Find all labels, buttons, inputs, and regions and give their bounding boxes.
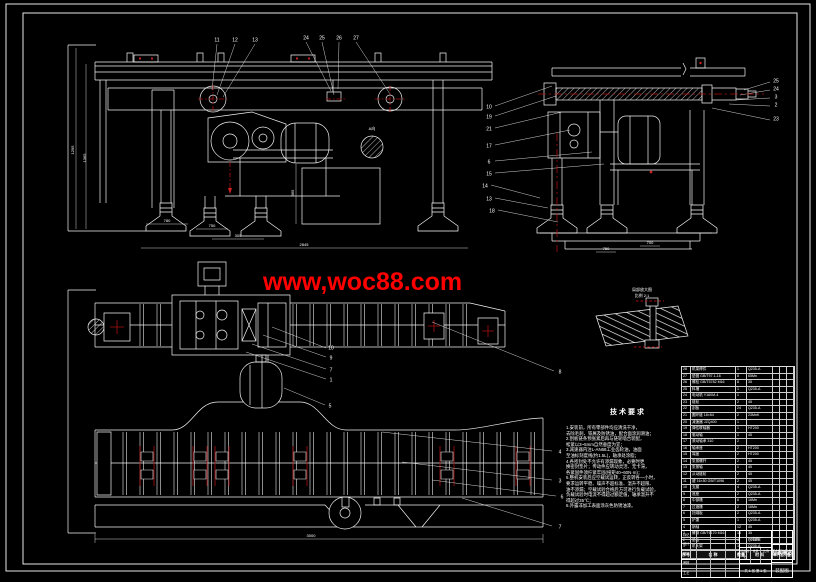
bom-cell: 45 (747, 433, 773, 439)
bom-cell: 10 (682, 485, 691, 491)
titleblock-sign-row: 设计 (682, 540, 739, 549)
bom-cell: 从动链轮 (691, 472, 736, 478)
bom-cell (780, 505, 787, 511)
part-callout: 8 (559, 371, 562, 376)
bom-cell (787, 420, 794, 426)
notes-title: 技术要求 (566, 407, 690, 417)
part-callout: 23 (773, 118, 779, 123)
bom-cell: 2 (736, 459, 747, 465)
sign-label-cell: 设计 (682, 540, 697, 548)
bom-cell (787, 374, 794, 380)
part-callout: 27 (353, 37, 359, 42)
bom-cell: 7 (682, 505, 691, 511)
sign-empty-cell (697, 559, 712, 567)
part-callout: 13 (486, 198, 492, 203)
weight-label: 重量 (751, 548, 762, 563)
bom-cell: 机架焊件 (691, 367, 736, 373)
bom-cell: 滚动轴承 310 (691, 439, 736, 445)
part-callout: 19 (486, 116, 492, 121)
part-callout: 6 (561, 496, 564, 501)
part-callout: 15 (486, 173, 492, 178)
sign-empty-cell (726, 559, 740, 567)
bom-cell: Q235-A (747, 367, 773, 373)
organization-name: ××机械厂 (740, 531, 771, 548)
bom-cell: 23MnK (747, 413, 773, 419)
sign-label-cell: 工艺 (682, 569, 697, 577)
part-callout: 10 (328, 347, 334, 352)
bom-cell: 1 (736, 433, 747, 439)
bom-cell (780, 498, 787, 504)
bom-cell: 5 (682, 518, 691, 524)
bom-cell (787, 387, 794, 393)
part-callout: 24 (773, 88, 779, 93)
bom-cell (747, 393, 773, 399)
dimension-label: 1295 (71, 146, 75, 155)
detail-label-line1: 局部放大图 (632, 288, 652, 293)
bom-cell: 2 (736, 446, 747, 452)
bom-cell (787, 472, 794, 478)
bom-cell (773, 446, 780, 452)
bom-cell (787, 511, 794, 517)
bom-cell: 16Mn (747, 498, 773, 504)
bom-cell: 8 (736, 374, 747, 380)
bom-cell: 1 (736, 387, 747, 393)
bom-cell (787, 380, 794, 386)
bom-cell (787, 498, 794, 504)
bom-cell: 电动机 Y160M-4 (691, 393, 736, 399)
bom-cell: HT200 (747, 426, 773, 432)
bom-cell: HT200 (747, 446, 773, 452)
bom-cell (787, 426, 794, 432)
bom-cell: 45 (747, 465, 773, 471)
detail-label-line2: 比例 2:1 (635, 294, 650, 299)
bom-cell: 9 (682, 492, 691, 498)
bom-cell: 4 (736, 485, 747, 491)
bom-cell: 链轮 (691, 400, 736, 406)
bom-cell: 2 (736, 452, 747, 458)
scale-label: 比例 (761, 548, 771, 563)
bom-cell (773, 420, 780, 426)
bom-cell (773, 498, 780, 504)
bom-cell: Q235-A (747, 518, 773, 524)
sign-empty-cell (697, 531, 712, 539)
bom-cell: 16Mn (747, 505, 773, 511)
bom-cell: 65Mn (747, 374, 773, 380)
bom-cell (780, 511, 787, 517)
sign-empty-cell (726, 540, 740, 548)
bom-cell: 弹性联轴器 (691, 426, 736, 432)
bom-cell (780, 492, 787, 498)
note-line: 6.外露非加工表面涂灰色防锈油漆。 (566, 503, 690, 509)
bom-cell (780, 433, 787, 439)
bom-cell (773, 518, 780, 524)
bom-cell: 2 (736, 511, 747, 517)
bom-cell (787, 367, 794, 373)
bom-cell (787, 400, 794, 406)
part-callout: 13 (252, 39, 258, 44)
bom-cell: Q235-A (747, 511, 773, 517)
watermark-text: www,woc88.com (263, 268, 462, 297)
bom-cell: 14 (682, 459, 691, 465)
bom-cell (773, 465, 780, 471)
bom-cell: 张紧轴 (691, 465, 736, 471)
title-block-signature-grid: 标记设计校核审核工艺 (682, 531, 740, 577)
dimension-label: 365 (291, 190, 295, 197)
bom-cell: 45 (747, 459, 773, 465)
bom-cell (773, 380, 780, 386)
bom-cell (780, 472, 787, 478)
bom-cell: 键 16×50 GB/T1096 (691, 479, 736, 485)
bom-cell: 11 (682, 479, 691, 485)
sign-label-cell: 标记 (682, 531, 697, 539)
bom-cell: 24 (736, 406, 747, 412)
bom-cell: Q235-A (747, 406, 773, 412)
bom-cell (780, 446, 787, 452)
bom-cell: 端盖 (691, 452, 736, 458)
bom-cell: 2 (736, 492, 747, 498)
bom-cell: 2 (736, 472, 747, 478)
bom-cell: 16 (682, 446, 691, 452)
bom-cell: 28 (682, 367, 691, 373)
part-callout: 18 (489, 210, 495, 215)
bom-cell: 挡煤板 (691, 511, 736, 517)
part-callout: 9 (330, 357, 333, 362)
bom-cell (780, 400, 787, 406)
bom-cell: 护罩 (691, 518, 736, 524)
bom-cell (773, 413, 780, 419)
bom-cell (787, 413, 794, 419)
dimension-label: 1365 (83, 154, 87, 163)
notes-body: 1.安装前，所有零部件均应清洗干净，去除毛刺、铁屑及防锈油，配合面涂润滑油；2.… (566, 425, 690, 509)
bom-cell: 料槽 (691, 387, 736, 393)
bom-cell (780, 374, 787, 380)
bom-cell (773, 511, 780, 517)
sign-empty-cell (726, 569, 740, 577)
dimension-label: 700 (647, 241, 654, 245)
part-callout: 26 (336, 37, 342, 42)
bom-cell: 减速器 JZQ400 (691, 420, 736, 426)
bom-cell: 底座 (691, 492, 736, 498)
sign-empty-cell (697, 569, 712, 577)
sheet-count: 共 1 张 第 1 张 (740, 564, 771, 577)
bom-cell (773, 433, 780, 439)
bom-cell (780, 406, 787, 412)
bom-cell (780, 518, 787, 524)
bom-cell: 26 (682, 380, 691, 386)
cad-drawing-canvas: 1112132425262710192117615141318252432231… (0, 0, 816, 582)
bom-cell: 35 (747, 380, 773, 386)
bom-cell (780, 380, 787, 386)
part-callout: 25 (773, 80, 779, 85)
bom-cell: 垫圈 GB/T97.1-16 (691, 374, 736, 380)
bom-cell (780, 367, 787, 373)
bom-cell: 过渡槽 (691, 505, 736, 511)
bom-cell (780, 452, 787, 458)
bom-cell: 20 (682, 420, 691, 426)
bom-cell: 2 (736, 439, 747, 445)
dimension-label: 2845 (300, 243, 309, 247)
bom-cell: 刮板 (691, 406, 736, 412)
bom-cell (787, 479, 794, 485)
titleblock-sign-row: 工艺 (682, 569, 739, 577)
bom-cell: Q235-A (747, 485, 773, 491)
bom-cell (773, 374, 780, 380)
technical-notes: 技术要求 1.安装前，所有零部件均应清洗干净，去除毛刺、铁屑及防锈油，配合面涂润… (566, 407, 690, 509)
part-callout: 17 (486, 145, 492, 150)
sign-empty-cell (697, 540, 712, 548)
dimension-label: 3000 (307, 534, 316, 538)
bom-cell (773, 387, 780, 393)
sign-empty-cell (726, 550, 740, 558)
bom-cell: 13 (682, 465, 691, 471)
bom-cell (780, 426, 787, 432)
part-callout: 24 (303, 37, 309, 42)
bom-cell: HT200 (747, 452, 773, 458)
bom-cell: 21 (682, 413, 691, 419)
bom-cell (787, 465, 794, 471)
bom-cell (787, 459, 794, 465)
bom-cell: 1 (736, 465, 747, 471)
drawing-title: 刮板输送机 (772, 545, 792, 563)
sign-empty-cell (711, 550, 726, 558)
stage-weight-scale-row: 阶段标记 重量 比例 (740, 548, 771, 564)
bom-cell: Q235-A (747, 387, 773, 393)
bom-cell: 23 (682, 400, 691, 406)
bom-cell (780, 387, 787, 393)
bom-cell (773, 393, 780, 399)
part-callout: 14 (482, 185, 488, 190)
stage-label: 阶段标记 (740, 548, 751, 563)
bom-cell: 45 (747, 472, 773, 478)
bom-cell (787, 433, 794, 439)
bom-cell (773, 459, 780, 465)
bom-cell: 支腿 (691, 485, 736, 491)
bom-cell: Q235-A (747, 492, 773, 498)
bom-cell (773, 485, 780, 491)
bom-cell (787, 452, 794, 458)
bom-cell (780, 485, 787, 491)
bom-cell: 18 (682, 433, 691, 439)
dimension-label: 750 (209, 224, 216, 228)
bom-cell (780, 459, 787, 465)
bom-cell: 22 (682, 406, 691, 412)
bom-cell (773, 439, 780, 445)
bom-cell (787, 406, 794, 412)
drawing-number-cell (772, 531, 792, 545)
bom-cell (787, 505, 794, 511)
bom-cell: 24 (682, 393, 691, 399)
title-block: 标记设计校核审核工艺 ××机械厂 阶段标记 重量 比例 共 1 张 第 1 张 … (681, 530, 793, 578)
bom-cell: 1 (736, 420, 747, 426)
bom-cell (787, 439, 794, 445)
bom-cell (787, 393, 794, 399)
bom-cell (780, 479, 787, 485)
bom-cell (780, 465, 787, 471)
sign-empty-cell (711, 540, 726, 548)
bom-cell: 2 (736, 413, 747, 419)
part-callout: 11 (214, 39, 219, 44)
bom-cell (773, 400, 780, 406)
bom-cell: 1 (736, 518, 747, 524)
bom-cell: 12 (682, 472, 691, 478)
bom-cell (773, 472, 780, 478)
bom-cell (787, 492, 794, 498)
bom-cell (780, 393, 787, 399)
part-callout: 10 (486, 106, 492, 111)
bom-cell (787, 485, 794, 491)
part-callout: 4 (559, 451, 562, 456)
bom-cell: 45 (747, 400, 773, 406)
sign-empty-cell (711, 569, 726, 577)
bom-cell: 驱动轴 (691, 433, 736, 439)
sign-empty-cell (711, 559, 726, 567)
part-callout: 7 (330, 369, 333, 374)
bom-cell (787, 446, 794, 452)
bom-cell: 6 (736, 498, 747, 504)
part-callout: 6 (488, 161, 491, 166)
bom-cell: 15 (682, 452, 691, 458)
bom-cell (773, 479, 780, 485)
sign-empty-cell (726, 531, 740, 539)
bom-cell (747, 420, 773, 426)
bom-cell: 圆环链 18×64 (691, 413, 736, 419)
part-callout: 21 (486, 128, 492, 133)
bom-cell (773, 492, 780, 498)
bom-cell: 25 (682, 387, 691, 393)
bom-cell: 6 (682, 511, 691, 517)
bom-cell: 45 (747, 479, 773, 485)
dimension-label: 305 (235, 234, 242, 238)
part-callout: 3 (559, 480, 562, 485)
title-block-right: 刮板输送机 装配图 (772, 531, 792, 577)
sign-empty-cell (697, 550, 712, 558)
section-tag: A向 (369, 127, 376, 132)
bom-cell: 2 (736, 479, 747, 485)
bom-cell (773, 505, 780, 511)
part-callout: 3 (775, 96, 778, 101)
part-callout: 1 (330, 379, 333, 384)
bom-cell (773, 406, 780, 412)
bom-cell: 1 (736, 426, 747, 432)
bom-cell: 8 (682, 498, 691, 504)
bom-cell: 2 (736, 400, 747, 406)
bom-cell: 1 (736, 393, 747, 399)
bom-cell: 张紧螺杆 (691, 459, 736, 465)
titleblock-sign-row: 审核 (682, 559, 739, 568)
bom-cell: 轴承座 (691, 446, 736, 452)
part-callout: 2 (775, 104, 778, 109)
bom-cell: 8 (736, 380, 747, 386)
sign-label-cell: 校核 (682, 550, 697, 558)
part-callout: 7 (559, 526, 562, 531)
bom-cell: 2 (736, 505, 747, 511)
bom-cell (747, 439, 773, 445)
part-callout: 25 (319, 37, 325, 42)
sign-empty-cell (711, 531, 726, 539)
sign-label-cell: 审核 (682, 559, 697, 567)
bom-cell: 17 (682, 439, 691, 445)
part-callout: 5 (329, 405, 332, 410)
bom-cell (780, 439, 787, 445)
dimension-label: 750 (603, 247, 610, 251)
titleblock-sign-row: 校核 (682, 550, 739, 559)
bom-cell: 19 (682, 426, 691, 432)
dimension-label: 780 (164, 219, 171, 223)
titleblock-sign-row: 标记 (682, 531, 739, 540)
title-block-middle: ××机械厂 阶段标记 重量 比例 共 1 张 第 1 张 (740, 531, 772, 577)
bom-cell (773, 426, 780, 432)
bom-cell (780, 420, 787, 426)
bom-cell: 螺栓 GB/T5782 M16 (691, 380, 736, 386)
bom-cell: 中部槽 (691, 498, 736, 504)
drawing-subtitle: 装配图 (772, 563, 792, 577)
part-callout: 12 (232, 39, 238, 44)
bom-cell (787, 518, 794, 524)
bom-cell: 27 (682, 374, 691, 380)
bom-cell: 1 (736, 367, 747, 373)
bom-cell (773, 452, 780, 458)
bom-cell (773, 367, 780, 373)
bom-cell (780, 413, 787, 419)
